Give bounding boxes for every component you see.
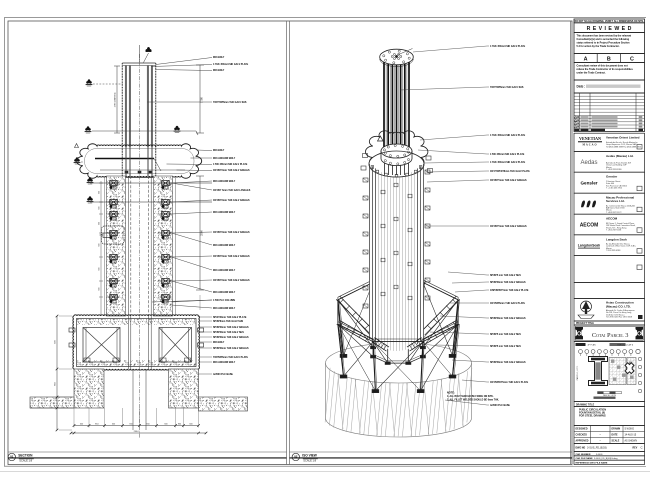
svg-text:SP/SP/6mm THK GALV ANGLES: SP/SP/6mm THK GALV ANGLES	[490, 281, 526, 284]
svg-text:1. ALL BOLT SHOULD BE FIXING: 1. ALL BOLT SHOULD BE FIXING ON SITE.	[447, 395, 494, 398]
svg-text:DATE: DATE	[612, 434, 619, 437]
svg-text:4 500 PLC COLUMN: 4 500 PLC COLUMN	[213, 299, 235, 302]
svg-text:Venetian Orient Limited: Venetian Orient Limited	[606, 136, 640, 140]
svg-text:CDT/DT6mm THK GALV ANGLES: CDT/DT6mm THK GALV ANGLES	[213, 169, 250, 172]
svg-text:T +852 2587 1138: T +852 2587 1138	[606, 230, 621, 232]
svg-text:C: C	[641, 446, 643, 450]
svg-text:4 THK 450mmTHK GALV PLATE: 4 THK 450mmTHK GALV PLATE	[490, 134, 526, 137]
svg-text:AS SHOWN: AS SHOWN	[625, 440, 638, 443]
svg-text:2. ALL FILLET WELDED SHOULD B: 2. ALL FILLET WELDED SHOULD BE 6mm THK.	[447, 399, 499, 402]
svg-text:SP/SP/6mm THK GALV ANGLES: SP/SP/6mm THK GALV ANGLES	[213, 347, 249, 350]
svg-text:PARCEL 1, LOT 1: PARCEL 1, LOT 1	[576, 366, 579, 380]
svg-text:(Macau) CO. LTD.: (Macau) CO. LTD.	[606, 304, 631, 308]
svg-text:under the Trade Contract.: under the Trade Contract.	[577, 72, 606, 75]
svg-text:TOP/SP/6mm THK GALV PLATE: TOP/SP/6mm THK GALV PLATE	[213, 356, 249, 359]
svg-text:Gensler: Gensler	[580, 181, 597, 186]
svg-text:SCALE: SCALE	[612, 440, 620, 443]
svg-text:SP/DT/6mm THK GALV PLATE: SP/DT/6mm THK GALV PLATE	[213, 316, 247, 319]
svg-text:SCALE 1:8: SCALE 1:8	[19, 459, 32, 463]
svg-text:CAD NUMBER: CAD NUMBER	[576, 453, 591, 456]
svg-text:Gensler: Gensler	[606, 175, 618, 179]
svg-text:FOR STEEL DRAWING: FOR STEEL DRAWING	[579, 415, 606, 418]
svg-text:AECOM: AECOM	[580, 223, 599, 229]
svg-text:Date :: Date :	[577, 85, 586, 89]
svg-text:M16 ANCHOR BOLT: M16 ANCHOR BOLT	[213, 180, 236, 183]
svg-text:02: 02	[294, 455, 298, 459]
svg-text:4/SP/SP/DT5mm THK GALV PLATE: 4/SP/SP/DT5mm THK GALV PLATE	[490, 289, 529, 292]
svg-text:CDT/TOP/DT6mm THK GALV PLATE: CDT/TOP/DT6mm THK GALV PLATE	[490, 170, 530, 173]
svg-text:5.4 for action by the Trade Co: 5.4 for action by the Trade Contractor.	[577, 45, 620, 48]
svg-text:Cotai Parcel 3: Cotai Parcel 3	[592, 332, 629, 339]
svg-text:LangdonSeah: LangdonSeah	[578, 244, 600, 248]
svg-text:4 THK 450mmTHK GALV PLATE: 4 THK 450mmTHK GALV PLATE	[490, 161, 526, 164]
svg-text:2500: 2500	[200, 230, 204, 236]
svg-text:TOP/TOP6mm THK GALV SHS: TOP/TOP6mm THK GALV SHS	[213, 101, 247, 104]
svg-text:R E V I E W E D: R E V I E W E D	[587, 26, 632, 32]
svg-text:C: C	[630, 57, 634, 63]
svg-text:SP/SP5 mm THK GALV SHS: SP/SP5 mm THK GALV SHS	[490, 333, 521, 336]
svg-text:SP/SP5 mm THK GALV SHS: SP/SP5 mm THK GALV SHS	[490, 345, 521, 348]
svg-text:SP/SP/6mm THK GALV SHS: SP/SP/6mm THK GALV SHS	[213, 331, 244, 334]
svg-text:M16 BOLT: M16 BOLT	[213, 57, 225, 59]
svg-text:Aedas: Aedas	[580, 160, 597, 166]
svg-text:SP/SP6mm THK GALV SHS: SP/SP6mm THK GALV SHS	[213, 320, 244, 323]
svg-text:2964: 2964	[134, 431, 140, 433]
svg-text:CDT/DT 6mm THK GALV ANGLES: CDT/DT 6mm THK GALV ANGLES	[213, 189, 251, 192]
svg-text:A/2000 PLC BASE: A/2000 PLC BASE	[213, 373, 233, 376]
svg-text:APPROVED: APPROVED	[576, 440, 589, 443]
svg-text:M16 ANCHOR BOLT: M16 ANCHOR BOLT	[213, 157, 236, 160]
svg-text:Tel: 2870 3218 Fax: 2870 3318: Tel: 2870 3218 Fax: 2870 3318	[606, 317, 632, 319]
svg-text:SP/SP5 mm THK GALV SHS: SP/SP5 mm THK GALV SHS	[490, 274, 521, 277]
svg-text:14-AUG-15: 14-AUG-15	[625, 434, 637, 437]
svg-text:CDT/SP/DT5mm THK GALV PLATE: CDT/SP/DT5mm THK GALV PLATE	[490, 381, 529, 384]
svg-text:M16 ANCHOR BOLT: M16 ANCHOR BOLT	[213, 244, 236, 247]
svg-text:M16 ANCHOR BOLT: M16 ANCHOR BOLT	[213, 291, 236, 294]
svg-text:S.WONG: S.WONG	[625, 429, 635, 431]
svg-text:DESIGNED: DESIGNED	[576, 429, 588, 431]
svg-text:1786: 1786	[200, 97, 204, 103]
svg-text:4 THK 450mmTHK GALV PLATE: 4 THK 450mmTHK GALV PLATE	[490, 45, 526, 48]
svg-text:T +1 415 433 3700: T +1 415 433 3700	[606, 188, 622, 190]
svg-text:B: B	[607, 57, 611, 63]
svg-text:PARCEL 1, LOT 2: PARCEL 1, LOT 2	[617, 344, 633, 347]
svg-text:CDT/SP/6mm THK GALV PLATE: CDT/SP/6mm THK GALV PLATE	[490, 302, 526, 305]
svg-text:Tel (853) 2888 3388 Fax (853): Tel (853) 2888 3388 Fax (853) 2888 3366	[606, 146, 641, 148]
svg-text:SP/SP/6mm THK GALV ANGLES: SP/SP/6mm THK GALV ANGLES	[490, 317, 526, 320]
svg-text:CAD FILE NAME: CAD FILE NAME	[576, 457, 594, 460]
svg-text:SP/SP/6mm THK GALV ANGLES: SP/SP/6mm THK GALV ANGLES	[213, 326, 249, 329]
svg-text:1786 (VARIES): 1786 (VARIES)	[114, 92, 117, 107]
svg-text:4 500 450mmTHK GALV PLATE: 4 500 450mmTHK GALV PLATE	[213, 163, 248, 166]
svg-text:A: A	[584, 57, 588, 63]
svg-text:TOP/TOP6mm THK GALV SHS: TOP/TOP6mm THK GALV SHS	[490, 86, 524, 89]
svg-text:SCALE 1:8: SCALE 1:8	[303, 459, 316, 463]
svg-text:01: 01	[10, 455, 14, 459]
svg-text:NOTE:: NOTE:	[447, 392, 455, 395]
svg-text:T 853 2835 6288: T 853 2835 6288	[606, 250, 620, 252]
svg-text:CDT/DT6mm THK GALV ANGLES: CDT/DT6mm THK GALV ANGLES	[213, 231, 250, 234]
svg-text:DWG NO: DWG NO	[576, 448, 586, 450]
svg-text:Aedas (Macau) Ltd.: Aedas (Macau) Ltd.	[606, 154, 634, 158]
svg-text:M16 ANCHOR BOLT: M16 ANCHOR BOLT	[213, 211, 236, 214]
svg-text:M16 BOLT: M16 BOLT	[213, 70, 225, 72]
svg-text:REV: REV	[633, 448, 638, 450]
svg-text:M16 ANCHOR BOLT: M16 ANCHOR BOLT	[213, 269, 236, 272]
svg-text:4F PLAN: 4F PLAN	[588, 344, 597, 347]
svg-text:SP/SP/6mm THK GALV ANGLES: SP/SP/6mm THK GALV ANGLES	[213, 336, 249, 339]
svg-text:DRAWN: DRAWN	[612, 428, 621, 431]
svg-text:T +853 2872 5172: T +853 2872 5172	[606, 212, 621, 214]
svg-text:MACAO: MACAO	[582, 144, 597, 147]
svg-text:CDT/DT6mm THK GALV ANGLES: CDT/DT6mm THK GALV ANGLES	[213, 255, 250, 258]
svg-text:M16 BOLT: M16 BOLT	[213, 150, 225, 152]
svg-text:SECTION: SECTION	[18, 454, 33, 458]
svg-text:CDT/DT6mm THK GALV ANGLES: CDT/DT6mm THK GALV ANGLES	[213, 199, 250, 202]
svg-text:CDT/DT5mm THK GALV ANGLES: CDT/DT5mm THK GALV ANGLES	[490, 179, 527, 182]
svg-text:CDT/DT6mm THK GALV ANGLES: CDT/DT6mm THK GALV ANGLES	[213, 279, 250, 282]
svg-text:M16 BOLT: M16 BOLT	[213, 342, 225, 344]
svg-text:A/2000 PLC BASE: A/2000 PLC BASE	[490, 404, 510, 407]
svg-text:3-SUS_FD_B(03): 3-SUS_FD_B(03)	[587, 447, 607, 450]
svg-text:M16 ANCHOR BOLT: M16 ANCHOR BOLT	[213, 361, 236, 364]
svg-text:SP/SP/6mm THK GALV ANGLES: SP/SP/6mm THK GALV ANGLES	[490, 361, 526, 364]
svg-text:Services Ltd.: Services Ltd.	[606, 199, 625, 203]
svg-text:CDT/DT5mm THK GALV ANGLES: CDT/DT5mm THK GALV ANGLES	[490, 225, 527, 228]
svg-text:ISO VIEW: ISO VIEW	[302, 454, 317, 458]
svg-text:DRAWING TITLE: DRAWING TITLE	[576, 403, 595, 406]
svg-text:T +853 2833 3380: T +853 2833 3380	[606, 169, 621, 171]
svg-text:REFERENCE DWG FILE NAME: REFERENCE DWG FILE NAME	[576, 462, 608, 465]
svg-text:CHECKED: CHECKED	[576, 435, 588, 437]
svg-text:VENETIAN: VENETIAN	[579, 136, 601, 141]
svg-text:AECOM: AECOM	[606, 217, 618, 221]
svg-text:4 THK 450mmTHK GALV PLATE: 4 THK 450mmTHK GALV PLATE	[213, 63, 249, 66]
svg-text:M16 ANCHOR BOLT: M16 ANCHOR BOLT	[213, 307, 236, 310]
svg-text:Langdon Seah: Langdon Seah	[606, 237, 627, 241]
svg-text:4 500 450mmTHK GALV PLATE: 4 500 450mmTHK GALV PLATE	[490, 153, 525, 156]
